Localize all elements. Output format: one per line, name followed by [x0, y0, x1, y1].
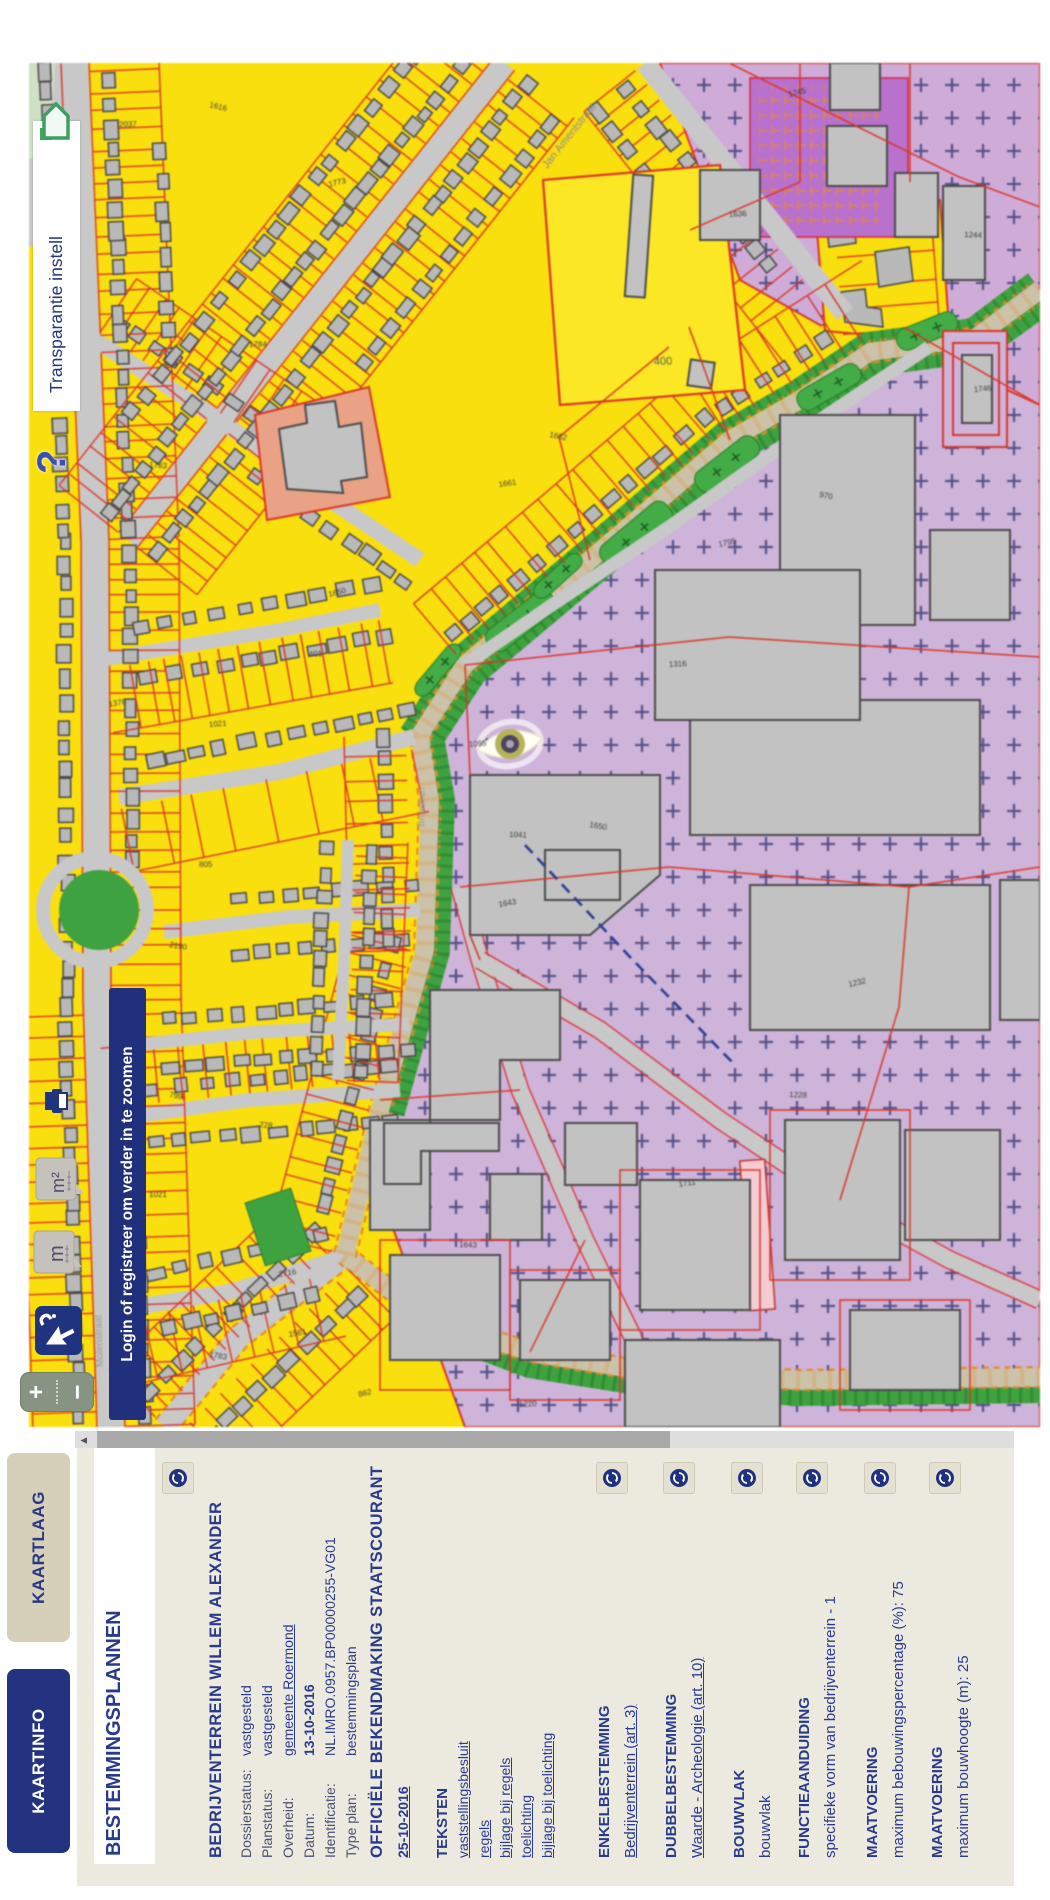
svg-text:1021: 1021: [209, 719, 228, 729]
svg-text:228: 228: [259, 1120, 274, 1130]
svg-text:1784: 1784: [249, 340, 267, 349]
svg-text:1643: 1643: [459, 1240, 478, 1250]
svg-text:401: 401: [308, 649, 323, 659]
svg-text:1041: 1041: [509, 830, 528, 840]
svg-text:1746: 1746: [973, 383, 992, 393]
svg-text:m: m: [46, 1245, 68, 1262]
svg-text:1228: 1228: [789, 1090, 808, 1100]
svg-text:1783: 1783: [149, 460, 168, 470]
svg-text:2037: 2037: [119, 120, 138, 129]
svg-text:Broekhin: Broekhin: [416, 787, 428, 827]
svg-text:1095: 1095: [468, 739, 487, 749]
svg-text:1220: 1220: [519, 1399, 538, 1409]
svg-text:1636: 1636: [729, 209, 748, 219]
svg-text:805: 805: [199, 860, 213, 869]
svg-text:Molenstraat: Molenstraat: [93, 1314, 106, 1367]
svg-text:1316: 1316: [669, 659, 688, 669]
svg-text:1021: 1021: [149, 1190, 167, 1199]
svg-text:m²: m²: [48, 1172, 68, 1193]
svg-text:1244: 1244: [964, 230, 983, 240]
